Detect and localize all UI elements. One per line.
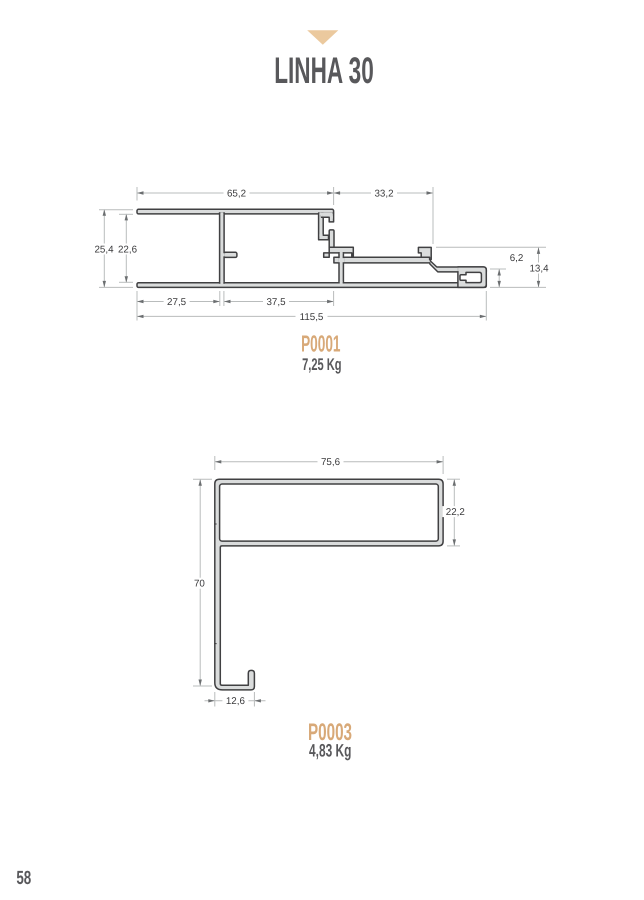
svg-text:70: 70	[194, 579, 205, 590]
svg-text:22,2: 22,2	[446, 507, 465, 518]
svg-text:4,83 Kg: 4,83 Kg	[309, 741, 351, 761]
svg-text:12,6: 12,6	[226, 696, 246, 707]
svg-text:25,4: 25,4	[94, 244, 114, 255]
svg-text:75,6: 75,6	[321, 457, 341, 468]
svg-text:22,6: 22,6	[118, 244, 138, 255]
svg-text:65,2: 65,2	[227, 188, 246, 199]
svg-text:37,5: 37,5	[266, 297, 286, 308]
svg-text:27,5: 27,5	[167, 297, 187, 308]
svg-text:LINHA 30: LINHA 30	[274, 50, 374, 91]
svg-text:6,2: 6,2	[510, 253, 524, 264]
svg-text:7,25 Kg: 7,25 Kg	[302, 355, 341, 374]
svg-text:115,5: 115,5	[300, 312, 324, 323]
svg-text:33,2: 33,2	[374, 188, 393, 199]
svg-text:13,4: 13,4	[529, 263, 549, 274]
svg-text:58: 58	[16, 868, 31, 889]
svg-text:P0001: P0001	[301, 330, 340, 356]
